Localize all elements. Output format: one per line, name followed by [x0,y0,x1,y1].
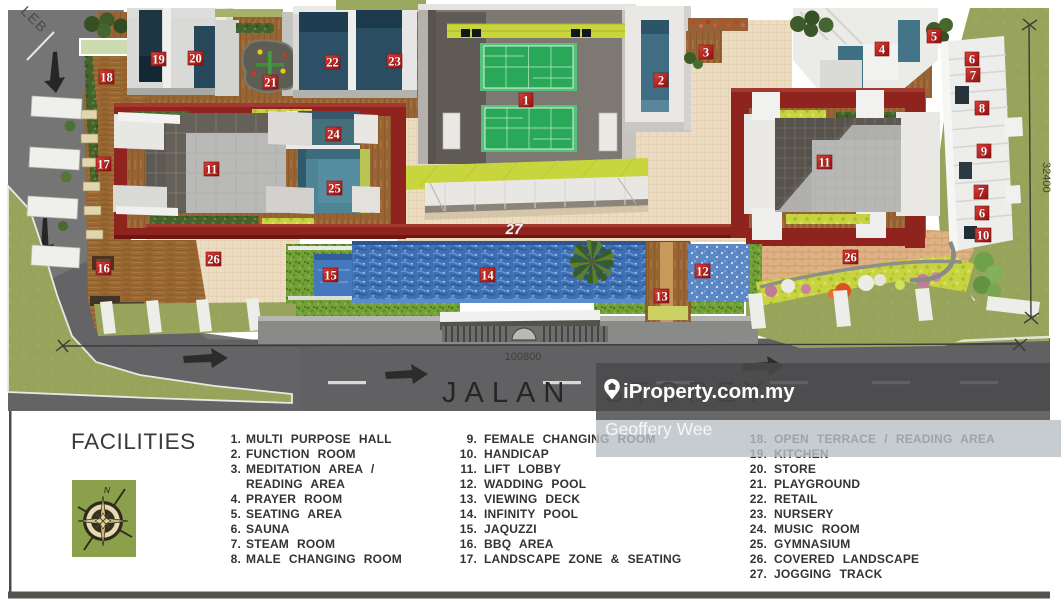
svg-text:7: 7 [978,186,984,200]
svg-text:STORE: STORE [774,462,816,476]
svg-text:RETAIL: RETAIL [774,492,818,506]
svg-text:VIEWING DECK: VIEWING DECK [484,492,580,506]
svg-text:24: 24 [327,128,340,142]
svg-text:4.: 4. [231,492,241,506]
svg-text:iProperty.com.my: iProperty.com.my [623,380,795,403]
svg-text:8.: 8. [231,552,241,566]
svg-text:FACILITIES: FACILITIES [71,429,196,454]
svg-text:Geoffery Wee: Geoffery Wee [605,419,712,439]
svg-text:MALE CHANGING ROOM: MALE CHANGING ROOM [246,552,402,566]
svg-text:HANDICAP: HANDICAP [484,447,549,461]
svg-text:22: 22 [326,56,339,70]
svg-text:6.: 6. [231,522,241,536]
svg-text:18: 18 [100,71,113,85]
svg-text:27: 27 [505,221,523,238]
svg-text:23.: 23. [750,507,767,521]
svg-text:13.: 13. [460,492,477,506]
svg-text:COVERED LANDSCAPE: COVERED LANDSCAPE [774,552,919,566]
svg-text:17.: 17. [460,552,477,566]
svg-text:8: 8 [979,102,985,116]
svg-text:BBQ AREA: BBQ AREA [484,537,554,551]
svg-text:14: 14 [481,269,494,283]
svg-text:GYMNASIUM: GYMNASIUM [774,537,850,551]
svg-text:23: 23 [388,55,401,69]
svg-text:NURSERY: NURSERY [774,507,834,521]
svg-text:1.: 1. [231,432,241,446]
svg-text:9.: 9. [467,432,477,446]
svg-text:11: 11 [819,156,831,170]
svg-text:26: 26 [207,253,220,267]
svg-text:MULTI PURPOSE HALL: MULTI PURPOSE HALL [246,432,392,446]
svg-text:MUSIC ROOM: MUSIC ROOM [774,522,860,536]
svg-text:10: 10 [977,229,990,243]
svg-text:MEDITATION AREA /: MEDITATION AREA / [246,462,375,476]
svg-text:9: 9 [981,145,987,159]
svg-text:26: 26 [844,251,857,265]
svg-text:LANDSCAPE ZONE & SEATING: LANDSCAPE ZONE & SEATING [484,552,681,566]
svg-text:5.: 5. [231,507,241,521]
svg-text:26.: 26. [750,552,767,566]
svg-text:21.: 21. [750,477,767,491]
svg-text:JAQUZZI: JAQUZZI [484,522,537,536]
svg-text:N: N [104,485,111,495]
svg-text:100800: 100800 [505,351,542,363]
svg-text:PLAYGROUND: PLAYGROUND [774,477,860,491]
svg-text:STEAM ROOM: STEAM ROOM [246,537,335,551]
svg-text:27.: 27. [750,567,767,581]
svg-text:12.: 12. [460,477,477,491]
svg-text:JOGGING TRACK: JOGGING TRACK [774,567,883,581]
svg-text:14.: 14. [460,507,477,521]
svg-text:2.: 2. [231,447,241,461]
svg-text:16.: 16. [460,537,477,551]
svg-text:21: 21 [264,76,277,90]
svg-text:15: 15 [324,269,337,283]
svg-text:25: 25 [328,182,341,196]
svg-text:12: 12 [696,265,709,279]
svg-text:1: 1 [523,94,529,108]
svg-text:5: 5 [931,30,937,44]
svg-text:7.: 7. [231,537,241,551]
svg-text:24.: 24. [750,522,767,536]
svg-text:PRAYER ROOM: PRAYER ROOM [246,492,342,506]
svg-text:SAUNA: SAUNA [246,522,290,536]
svg-text:22.: 22. [750,492,767,506]
svg-text:20: 20 [189,52,202,66]
svg-text:INFINITY POOL: INFINITY POOL [484,507,578,521]
svg-text:WADDING POOL: WADDING POOL [484,477,586,491]
svg-text:3: 3 [703,46,709,60]
svg-text:25.: 25. [750,537,767,551]
svg-text:7: 7 [970,69,976,83]
svg-text:6: 6 [969,53,975,67]
svg-text:17: 17 [97,158,110,172]
svg-text:13: 13 [655,290,668,304]
svg-text:LIFT LOBBY: LIFT LOBBY [484,462,561,476]
svg-text:6: 6 [979,207,985,221]
svg-text:READING AREA: READING AREA [246,477,345,491]
svg-text:4: 4 [879,43,886,57]
svg-text:16: 16 [97,262,110,276]
svg-text:15.: 15. [460,522,477,536]
svg-text:11: 11 [206,163,218,177]
svg-text:32400: 32400 [1040,162,1052,193]
svg-text:11.: 11. [460,462,477,476]
svg-text:20.: 20. [750,462,767,476]
svg-text:3.: 3. [231,462,241,476]
svg-text:10.: 10. [460,447,477,461]
svg-text:SEATING AREA: SEATING AREA [246,507,342,521]
svg-text:2: 2 [658,74,664,88]
svg-text:19: 19 [152,53,165,67]
svg-text:FUNCTION ROOM: FUNCTION ROOM [246,447,356,461]
